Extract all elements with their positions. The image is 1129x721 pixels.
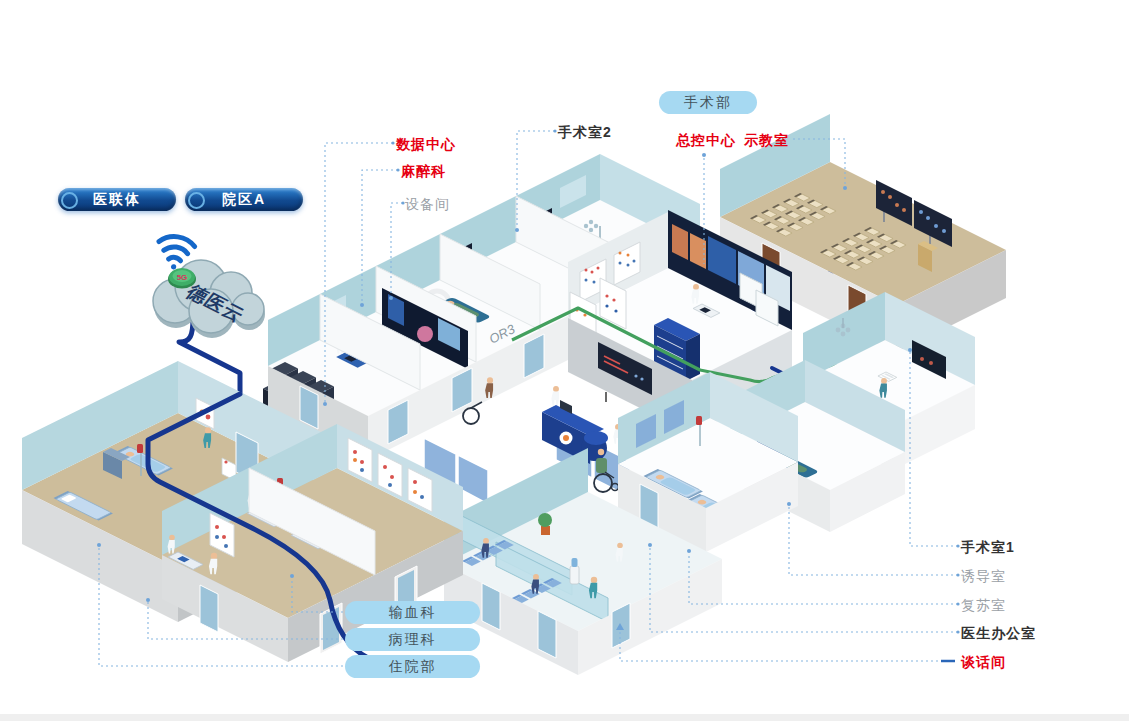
pill-blood-transfusion[interactable]: 输血科 <box>345 601 480 624</box>
callout-equipment-room: 设备间 <box>405 197 450 211</box>
hospital-isometric-diagram: 德医云 5G <box>0 0 1129 721</box>
callout-or1: 手术室1 <box>961 540 1015 554</box>
callout-recovery-room: 复苏室 <box>961 598 1006 612</box>
footer-strip <box>0 714 1129 721</box>
callout-master-control: 总控中心 <box>676 133 736 147</box>
callout-doctor-office: 医生办公室 <box>961 626 1036 640</box>
iv-bag <box>696 416 702 425</box>
callout-talk-room: 谈话间 <box>961 655 1006 669</box>
callout-induction-room: 诱导室 <box>961 569 1006 583</box>
callout-or2: 手术室2 <box>558 125 612 139</box>
cloud-shape: 德医云 5G <box>153 260 265 338</box>
pill-campus-a[interactable]: 院区A <box>185 188 303 211</box>
isometric-scene: 德医云 5G <box>0 0 1129 721</box>
callout-demo-classroom: 示教室 <box>744 133 789 147</box>
pill-medical-consortium[interactable]: 医联体 <box>58 188 176 211</box>
badge-5g: 5G <box>177 273 188 282</box>
callout-data-center: 数据中心 <box>396 137 456 151</box>
pill-pathology[interactable]: 病理科 <box>345 628 480 651</box>
pill-inpatient[interactable]: 住院部 <box>345 655 480 678</box>
callout-anesthesiology: 麻醉科 <box>401 164 446 178</box>
pill-surgery-department[interactable]: 手术部 <box>659 91 757 114</box>
